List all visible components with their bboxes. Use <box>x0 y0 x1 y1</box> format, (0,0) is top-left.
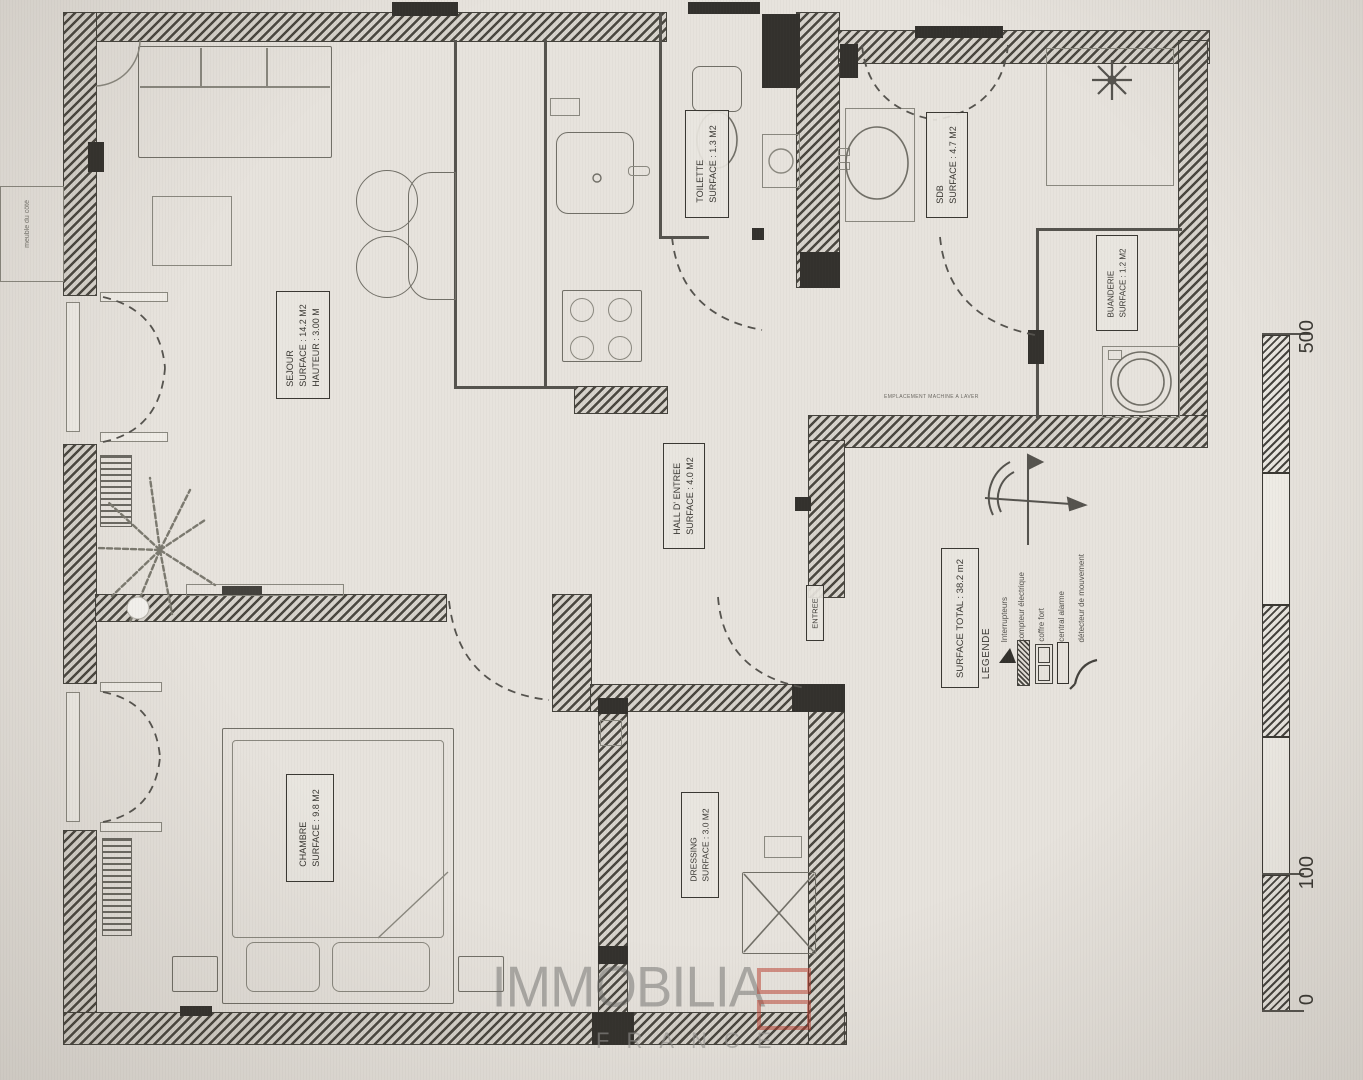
room-name: CHAMBRE <box>297 789 310 867</box>
exterior-note-box <box>0 186 64 282</box>
kitchen-switch-box <box>550 98 580 116</box>
window-jamb <box>100 292 168 302</box>
north-compass-icon <box>985 455 1085 545</box>
door-jamb <box>800 252 840 288</box>
room-label-toilette: TOILETTE SURFACE : 1.3 M2 <box>685 110 729 218</box>
washing-machine-panel <box>1108 350 1122 360</box>
scale-tick <box>1262 1010 1304 1012</box>
scale-segment <box>1262 473 1290 605</box>
scale-segment <box>1262 875 1290 1012</box>
duvet <box>232 740 444 938</box>
floor-plan-photo: meuble du côté EMPLACEMENT MACHINE A LAV… <box>0 0 1363 1080</box>
room-name: ENTREE <box>809 598 822 628</box>
radiator <box>102 838 132 936</box>
room-surface: SURFACE : 3.0 M2 <box>700 808 712 881</box>
partition-toilette-left <box>659 12 662 238</box>
room-name: BUANDERIE <box>1105 249 1117 318</box>
scale-segment <box>1262 335 1290 473</box>
kitchen-counter-line <box>454 386 576 389</box>
dressing-bench <box>764 836 802 858</box>
room-surface: SURFACE : 4.0 M2 <box>684 457 697 535</box>
toilet-tank <box>692 66 742 112</box>
scale-segment <box>1262 605 1290 737</box>
safe-icon <box>1035 644 1053 684</box>
window-lintel <box>688 2 760 14</box>
radiator <box>100 455 132 527</box>
burner <box>608 298 632 322</box>
legend-label: Interrupteurs <box>1000 597 1009 642</box>
window-lintel <box>392 2 458 16</box>
partition-toilette-bottom <box>659 236 709 239</box>
door-jamb <box>598 946 628 964</box>
wall-junction <box>592 1012 634 1045</box>
console <box>186 584 344 596</box>
surface-total-box: SURFACE TOTAL : 38.2 m2 <box>941 548 979 688</box>
door-hinge <box>752 228 764 240</box>
window-glazing <box>66 692 80 822</box>
window-jamb <box>100 822 162 832</box>
room-surface: SURFACE : 14.2 M2 <box>297 304 310 387</box>
wall-bottom <box>63 1012 847 1045</box>
electric-meter-icon <box>1017 640 1030 686</box>
watermark-logo-icon <box>757 968 811 994</box>
wall-right-lower <box>808 688 845 1045</box>
wall-central-top <box>796 12 840 288</box>
burner <box>570 336 594 360</box>
wall-dressing-vert-upper <box>552 594 592 712</box>
kitchen-counter-line <box>544 40 547 388</box>
room-label-buanderie: BUANDERIE SURFACE : 1.2 M2 <box>1096 235 1138 331</box>
wall-unit <box>88 142 104 172</box>
scale-label-0: 0 <box>1296 994 1319 1005</box>
motion-detector-icon <box>1070 660 1097 689</box>
exterior-note: meuble du côté <box>24 200 31 248</box>
safe-inner-cell <box>1038 647 1050 663</box>
faucet <box>628 166 650 176</box>
room-label-chambre: CHAMBRE SURFACE : 9.8 M2 <box>286 774 334 882</box>
wall-kitchen-stub <box>574 386 668 414</box>
room-label-hall: HALL D' ENTREE SURFACE : 4.0 M2 <box>663 443 705 549</box>
sofa <box>138 46 332 158</box>
room-label-dressing: DRESSING SURFACE : 3.0 M2 <box>681 792 719 898</box>
room-label-sdb: SDB SURFACE : 4.7 M2 <box>926 112 968 218</box>
kitchen-sink <box>556 132 634 214</box>
nightstand <box>172 956 218 992</box>
wall-stub <box>762 14 800 88</box>
room-name: DRESSING <box>688 808 700 881</box>
wall-hall-right <box>808 440 845 598</box>
room-name: TOILETTE <box>694 125 707 203</box>
hand-basin <box>762 134 800 188</box>
switch-icon <box>999 648 1016 663</box>
alarm-panel-icon <box>1057 642 1069 684</box>
wall-junction <box>792 684 845 712</box>
partition-buanderie-top <box>1036 228 1182 231</box>
room-surface: SURFACE : 4.7 M2 <box>947 126 960 204</box>
legend-label: central alarme <box>1057 591 1066 642</box>
window-jamb <box>100 432 168 442</box>
dressing-shelf <box>600 720 622 746</box>
legend-title: LEGENDE <box>981 628 992 679</box>
legend-label: compteur électrique <box>1017 572 1026 642</box>
wall-left-2 <box>63 444 97 684</box>
room-label-entree: ENTREE <box>806 585 824 641</box>
surface-total: SURFACE TOTAL : 38.2 m2 <box>954 559 967 678</box>
wall-mark <box>180 1006 212 1016</box>
nightstand <box>458 956 504 992</box>
room-surface: SURFACE : 1.2 M2 <box>1117 249 1129 318</box>
window-glazing <box>66 302 80 432</box>
room-height: HAUTEUR : 3.00 M <box>310 304 323 387</box>
vanity-counter <box>845 108 915 222</box>
room-name: SDB <box>934 126 947 204</box>
sdb-note: EMPLACEMENT MACHINE A LAVER <box>884 394 979 400</box>
pillow <box>332 942 430 992</box>
faucet <box>838 148 850 156</box>
safe-inner-cell <box>1038 665 1050 681</box>
wall-sdb-bottom <box>808 415 1208 448</box>
window-lintel <box>915 26 1003 38</box>
window-jamb <box>100 682 162 692</box>
corner-arc <box>96 40 140 86</box>
room-name: HALL D' ENTREE <box>671 457 684 535</box>
wall-top <box>63 12 667 42</box>
wall-sdb-right <box>1178 40 1208 448</box>
shower-tray <box>1046 48 1174 186</box>
wall-middle <box>95 594 447 622</box>
room-surface: SURFACE : 1.3 M2 <box>707 125 720 203</box>
faucet <box>838 162 850 170</box>
door-jamb <box>840 44 858 78</box>
wall-dressing-vert-lower <box>598 712 628 1015</box>
pillow <box>246 942 320 992</box>
legend-label: coffre fort <box>1037 608 1046 642</box>
burner <box>608 336 632 360</box>
scale-segment <box>1262 737 1290 875</box>
legend-label: détecteur de mouvement <box>1077 554 1086 643</box>
room-label-sejour: SEJOUR SURFACE : 14.2 M2 HAUTEUR : 3.00 … <box>276 291 330 399</box>
partition-buanderie-left <box>1036 228 1039 418</box>
room-surface: SURFACE : 9.8 M2 <box>310 789 323 867</box>
utility-box <box>795 497 811 511</box>
room-name: SEJOUR <box>284 304 297 387</box>
door-jamb <box>1028 330 1044 364</box>
table <box>408 172 456 300</box>
burner <box>570 298 594 322</box>
scale-label-500: 500 <box>1296 320 1319 353</box>
wardrobe <box>742 872 816 954</box>
door-jamb <box>598 698 628 714</box>
rug <box>152 196 232 266</box>
scale-label-100: 100 <box>1296 856 1319 889</box>
